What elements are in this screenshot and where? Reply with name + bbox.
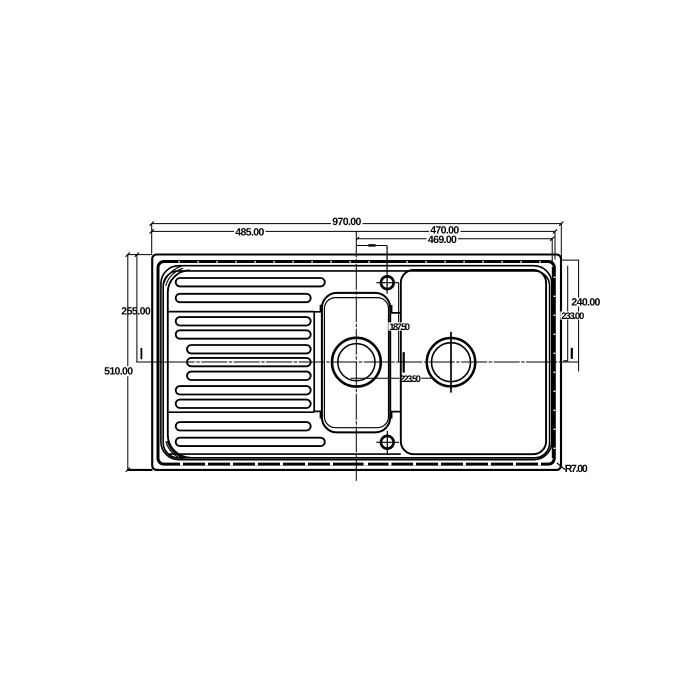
svg-text:223.50: 223.50	[399, 374, 421, 385]
svg-text:233.00: 233.00	[561, 311, 584, 322]
svg-text:485.00: 485.00	[235, 226, 264, 238]
svg-text:510.00: 510.00	[104, 366, 133, 378]
svg-text:R7.00: R7.00	[565, 463, 588, 475]
svg-text:469.00: 469.00	[428, 234, 457, 246]
svg-text:187.50: 187.50	[389, 322, 410, 333]
svg-text:970.00: 970.00	[332, 216, 361, 228]
svg-text:240.00: 240.00	[571, 297, 600, 309]
svg-text:255.00: 255.00	[121, 306, 151, 318]
